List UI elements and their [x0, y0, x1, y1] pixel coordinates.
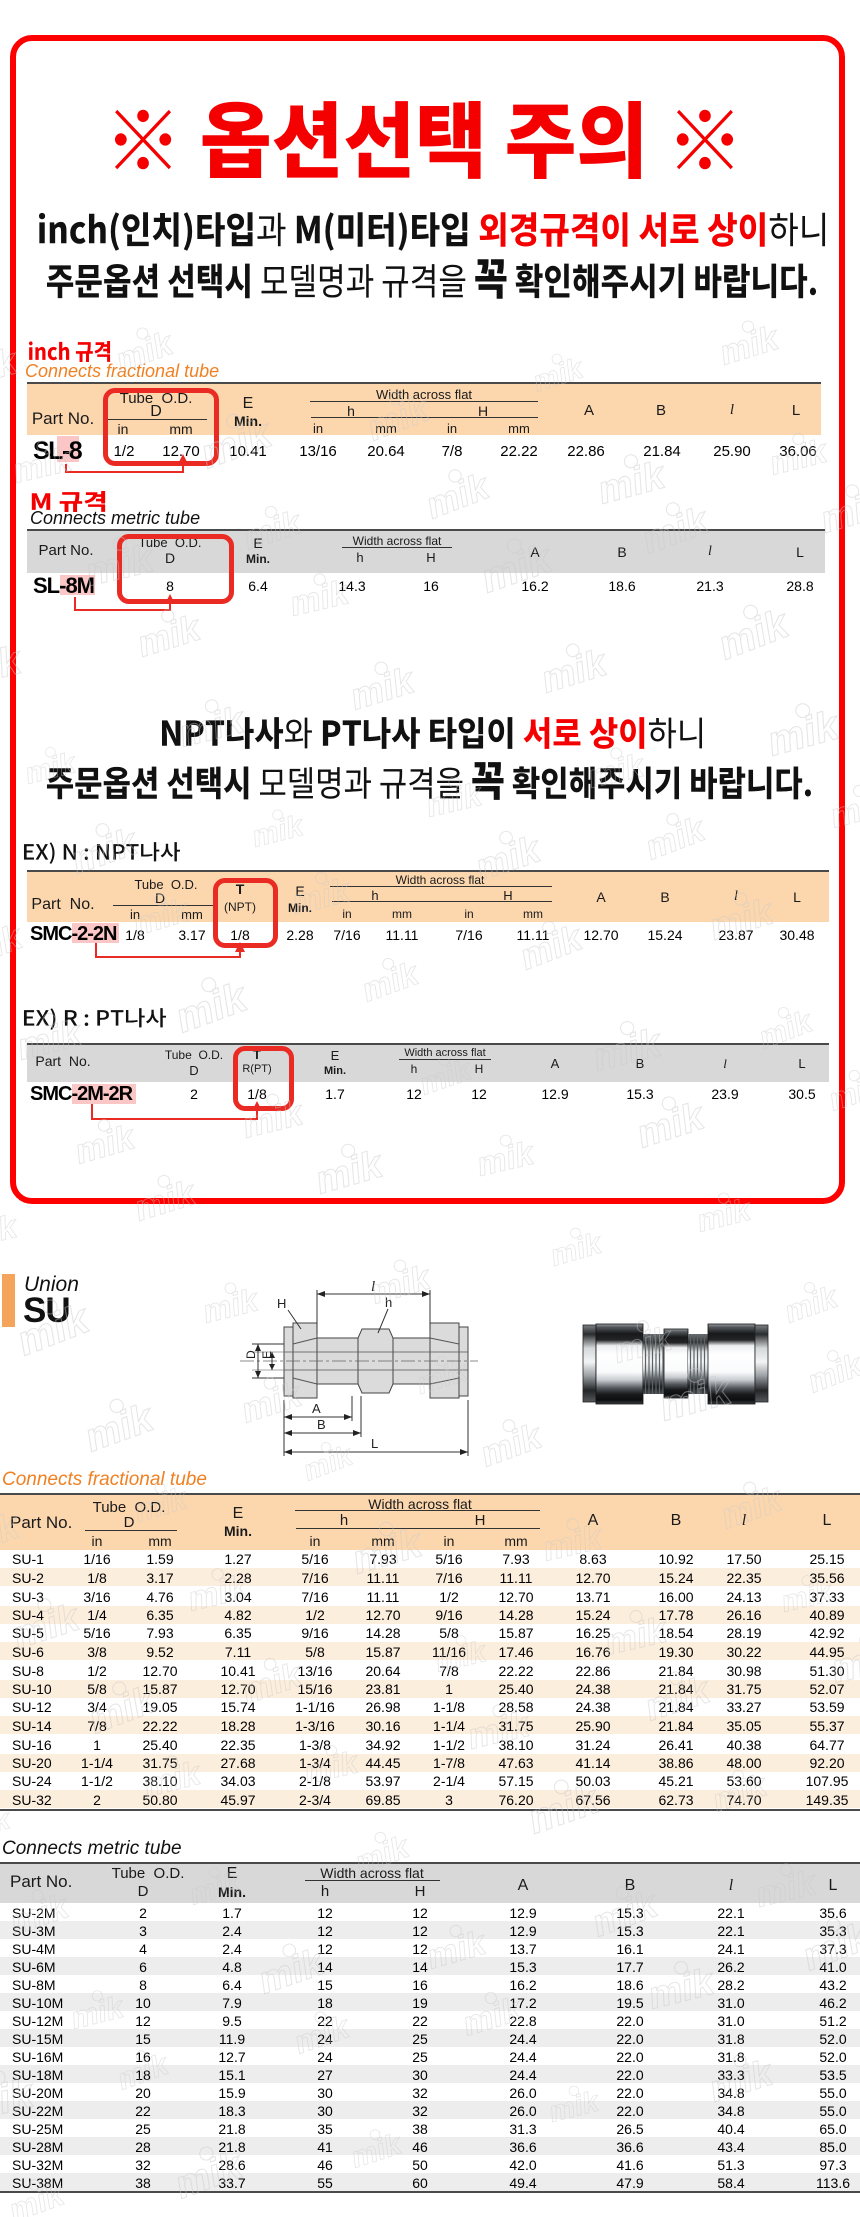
svg-text:E: E — [260, 1351, 274, 1359]
svg-text:L: L — [371, 1436, 378, 1451]
svg-text:H: H — [277, 1296, 286, 1311]
svg-text:l: l — [371, 1279, 375, 1295]
svg-text:h: h — [385, 1295, 392, 1310]
svg-text:A: A — [312, 1401, 321, 1416]
svg-text:D: D — [244, 1350, 258, 1359]
svg-text:B: B — [317, 1417, 326, 1432]
